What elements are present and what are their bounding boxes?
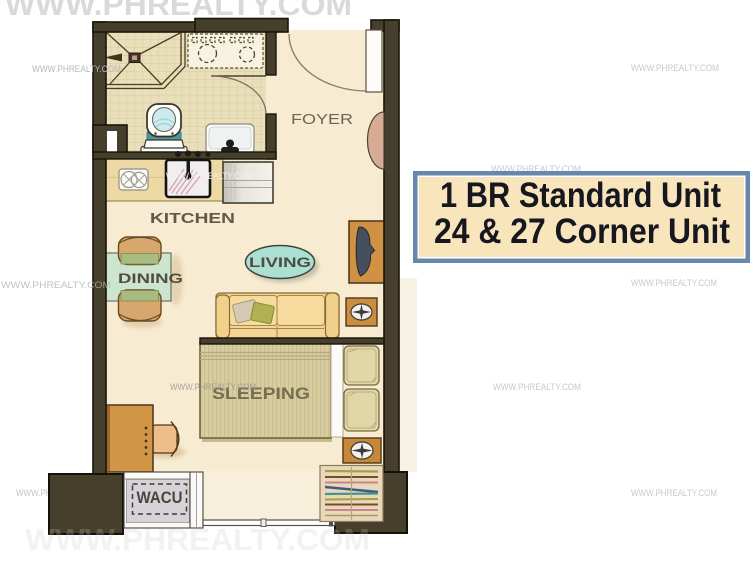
- svg-text:WWW.PHREALTY.COM: WWW.PHREALTY.COM: [1, 280, 111, 291]
- svg-text:WACU: WACU: [137, 489, 183, 507]
- svg-text:WWW.PHREALTY.COM: WWW.PHREALTY.COM: [631, 488, 717, 499]
- svg-text:WWW.PHREALTY.COM: WWW.PHREALTY.COM: [631, 278, 717, 289]
- svg-text:WWW.PHREALTY.COM: WWW.PHREALTY.COM: [493, 382, 581, 393]
- svg-text:WWW.PHREALTY.COM: WWW.PHREALTY.COM: [32, 64, 121, 75]
- svg-text:KITCHEN: KITCHEN: [150, 211, 235, 227]
- svg-text:WWW.PHREALTY.COM: WWW.PHREALTY.COM: [25, 522, 370, 557]
- svg-text:DINING: DINING: [118, 271, 183, 286]
- svg-text:24 & 27 Corner Unit: 24 & 27 Corner Unit: [434, 211, 730, 251]
- svg-text:WWW.PHREALTY.COM: WWW.PHREALTY.COM: [166, 171, 253, 182]
- svg-text:FOYER: FOYER: [291, 111, 353, 128]
- svg-text:WWW.PHREALTY.COM: WWW.PHREALTY.COM: [5, 0, 352, 22]
- svg-text:1 BR Standard Unit: 1 BR Standard Unit: [440, 175, 721, 215]
- svg-text:WWW.PHREALTY.COM: WWW.PHREALTY.COM: [170, 382, 256, 393]
- svg-text:LIVING: LIVING: [249, 255, 311, 270]
- svg-text:WWW.PHREALTY.COM: WWW.PHREALTY.COM: [631, 63, 719, 74]
